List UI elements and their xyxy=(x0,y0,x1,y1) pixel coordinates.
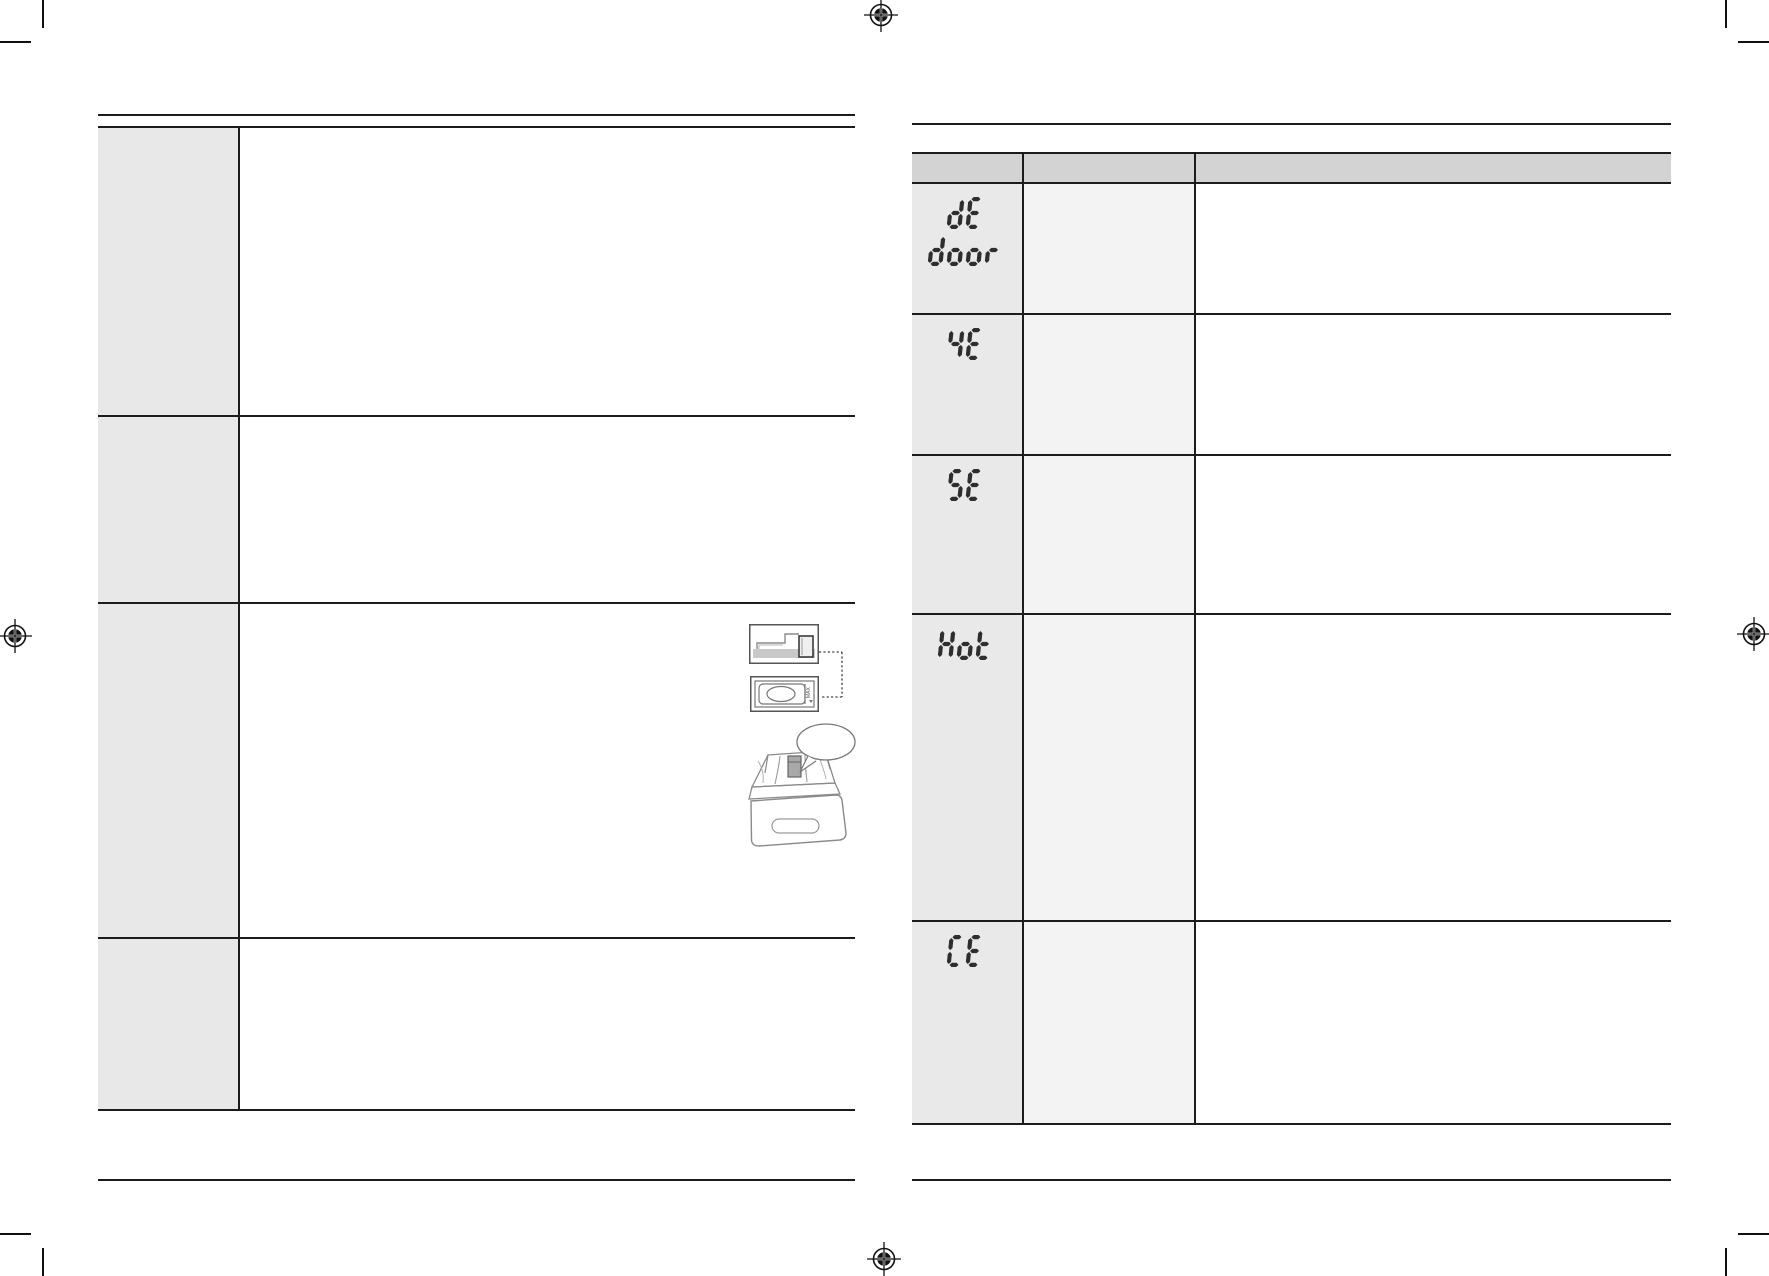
crop-mark-top-right-h xyxy=(1738,41,1769,43)
table-row xyxy=(98,937,855,1109)
left-troubleshooting-table xyxy=(98,126,855,1111)
error-code-rows xyxy=(912,184,1671,1125)
header-cell-code xyxy=(912,154,1024,182)
code-cell xyxy=(912,315,1024,454)
registration-mark-top xyxy=(864,0,898,32)
row-label-cell xyxy=(98,604,240,937)
header-cell-middle xyxy=(1024,154,1196,182)
right-cell xyxy=(1196,315,1671,454)
detergent-drawer-callout-icon xyxy=(742,715,862,850)
error-code-row xyxy=(912,454,1671,613)
manual-page-scan: MAX xyxy=(0,0,1769,1276)
crop-mark-top-left-v xyxy=(42,0,44,28)
error-code-table-header xyxy=(912,152,1671,184)
seven-segment-code xyxy=(946,197,987,229)
code-cell xyxy=(912,456,1024,613)
code-cell xyxy=(912,184,1024,313)
seven-segment-code xyxy=(937,628,997,660)
max-label: MAX xyxy=(806,687,812,699)
middle-cell xyxy=(1024,615,1196,920)
seven-segment-code xyxy=(946,935,987,967)
row-label-cell xyxy=(98,417,240,602)
code-cell xyxy=(912,922,1024,1123)
registration-mark-bottom xyxy=(867,1242,901,1276)
middle-cell xyxy=(1024,922,1196,1123)
right-page-top-rule xyxy=(912,123,1671,125)
right-cell xyxy=(1196,922,1671,1123)
crop-mark-top-left-h xyxy=(0,41,31,43)
code-cell xyxy=(912,615,1024,920)
seven-segment-code xyxy=(946,469,987,501)
left-page-bottom-rule xyxy=(98,1179,855,1181)
error-code-row xyxy=(912,920,1671,1123)
dispenser-side-view-icon xyxy=(749,624,819,664)
left-page-top-rule xyxy=(98,114,855,116)
seven-segment-code xyxy=(946,328,987,360)
error-code-row xyxy=(912,613,1671,920)
right-cell xyxy=(1196,456,1671,613)
seven-segment-code xyxy=(927,234,1006,266)
row-content-cell xyxy=(240,417,855,602)
table-row xyxy=(98,415,855,602)
dispenser-top-view-icon: MAX xyxy=(750,676,819,712)
header-cell-right xyxy=(1196,154,1671,182)
right-cell xyxy=(1196,184,1671,313)
registration-mark-right xyxy=(1737,617,1769,651)
table-row xyxy=(98,128,855,415)
crop-mark-bottom-left-h xyxy=(0,1233,31,1235)
error-code-row xyxy=(912,184,1671,313)
row-label-cell xyxy=(98,128,240,415)
middle-cell xyxy=(1024,315,1196,454)
middle-cell xyxy=(1024,456,1196,613)
callout-connector-dotted xyxy=(815,645,850,705)
error-code-table xyxy=(912,152,1671,1125)
row-content-cell xyxy=(240,128,855,415)
crop-mark-bottom-left-v xyxy=(42,1248,44,1276)
row-label-cell xyxy=(98,939,240,1109)
crop-mark-bottom-right-v xyxy=(1725,1248,1727,1276)
crop-mark-bottom-right-h xyxy=(1738,1233,1769,1235)
middle-cell xyxy=(1024,184,1196,313)
row-content-cell xyxy=(240,939,855,1109)
registration-mark-left xyxy=(0,619,32,653)
right-page-bottom-rule xyxy=(912,1179,1671,1181)
right-cell xyxy=(1196,615,1671,920)
error-code-row xyxy=(912,313,1671,454)
crop-mark-top-right-v xyxy=(1725,0,1727,28)
